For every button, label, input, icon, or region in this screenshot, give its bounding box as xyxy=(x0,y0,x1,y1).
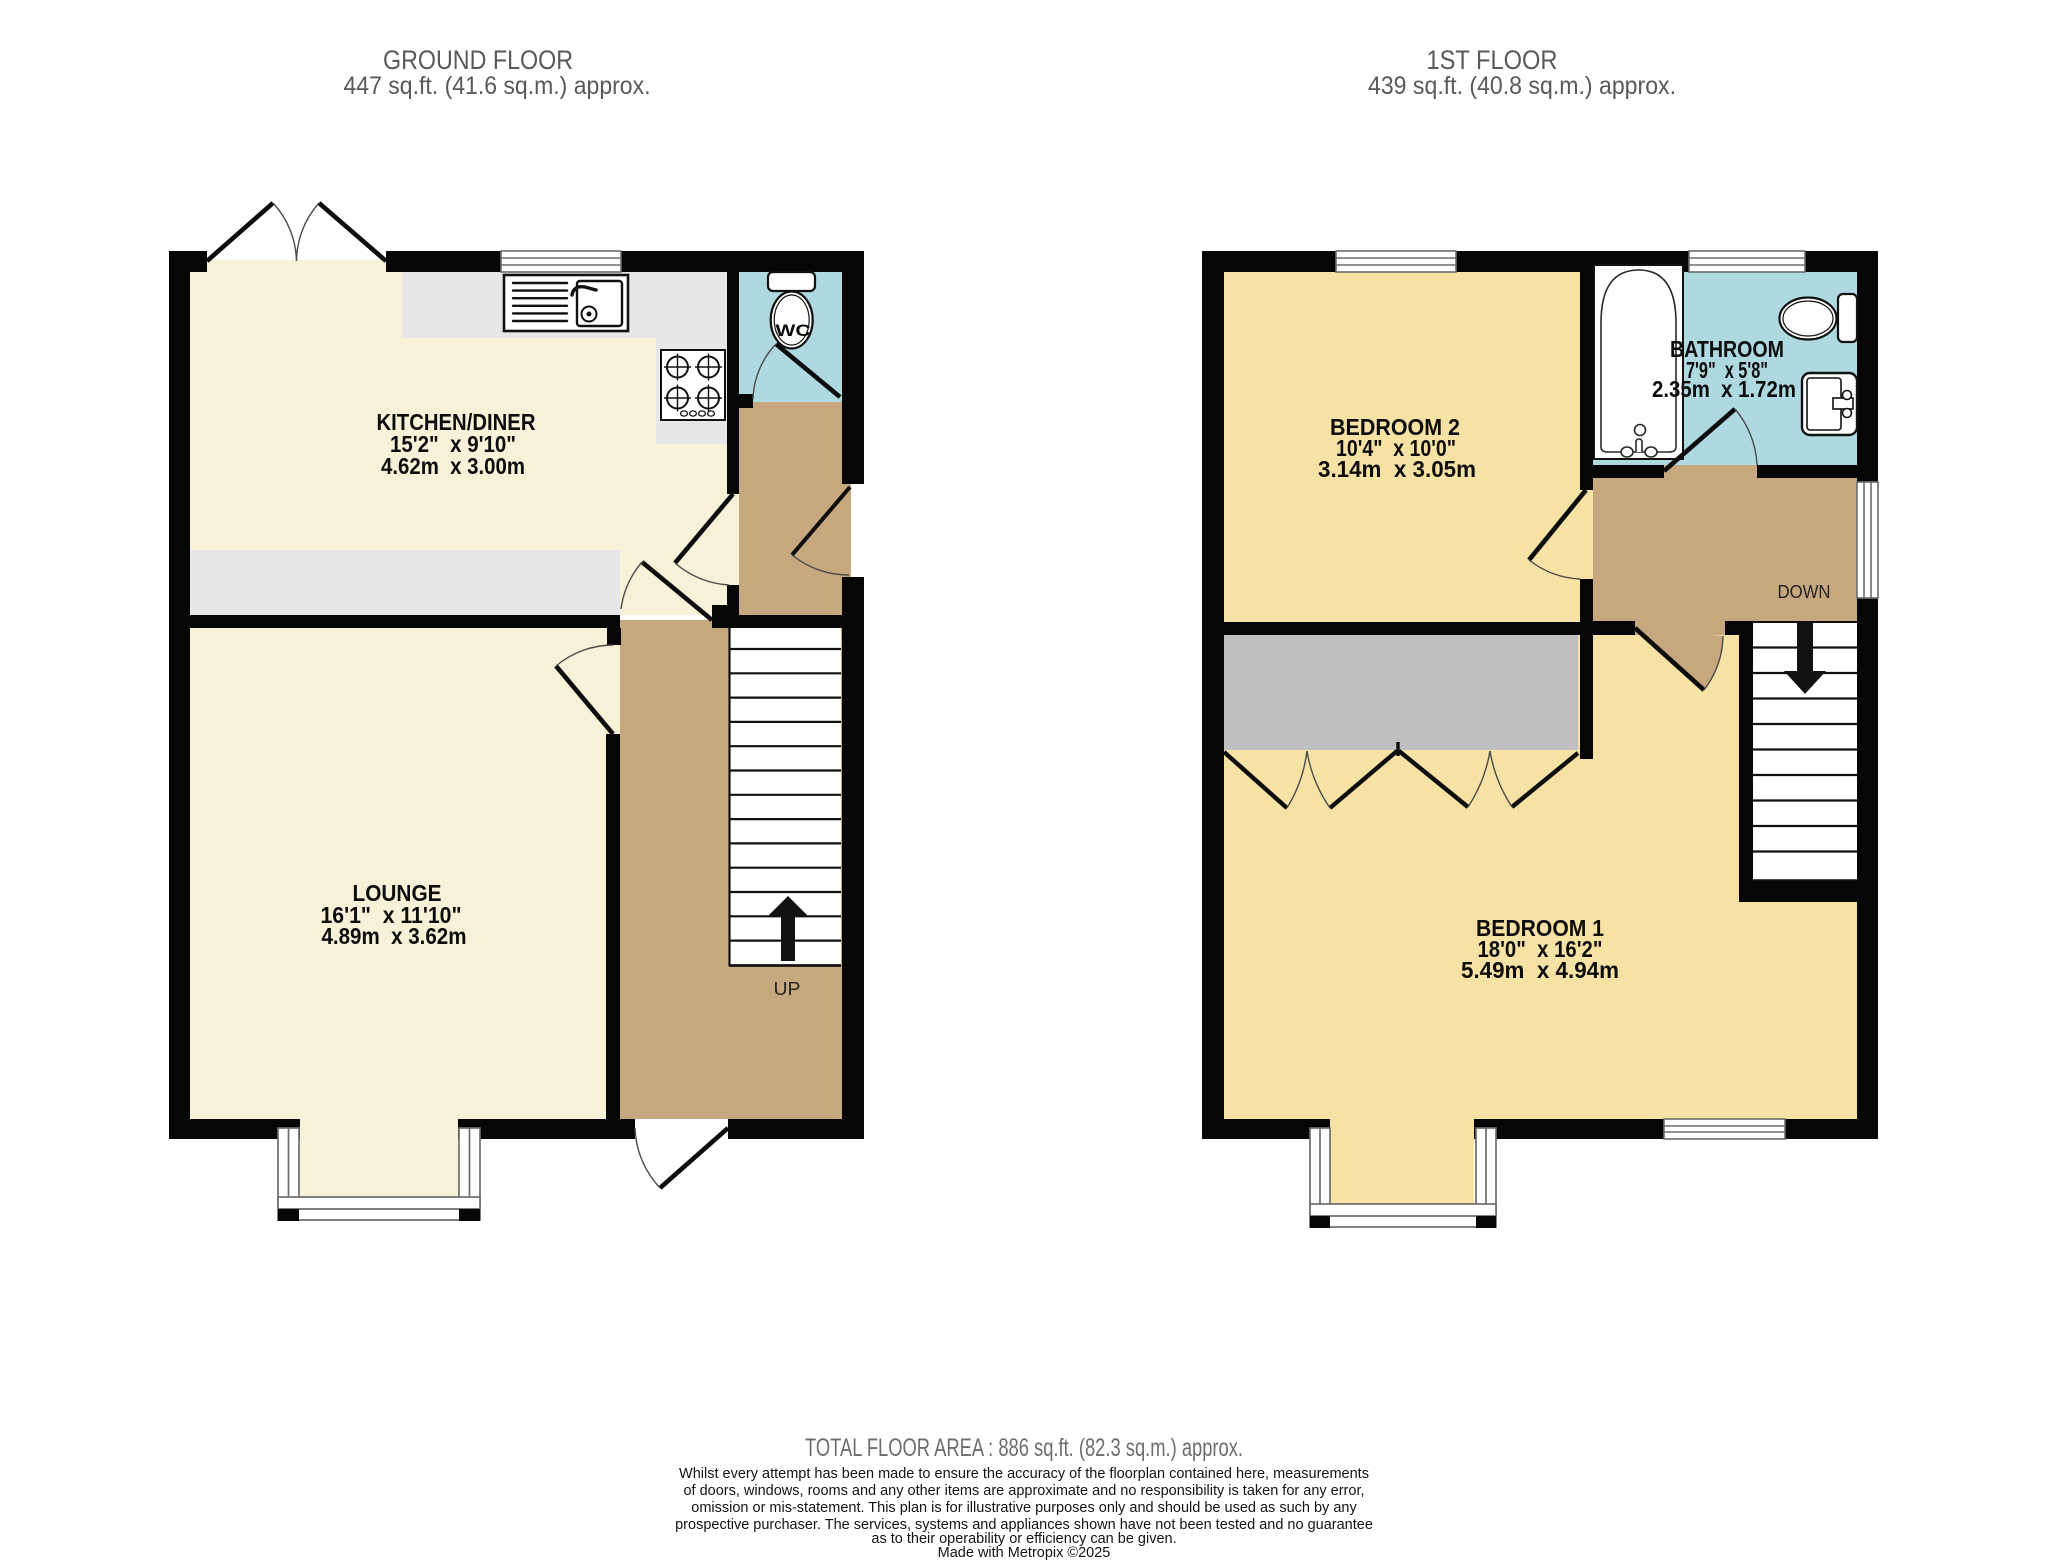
svg-text:of doors, windows, rooms and a: of doors, windows, rooms and any other i… xyxy=(683,1483,1364,1499)
svg-text:GROUND FLOOR: GROUND FLOOR xyxy=(383,45,573,75)
svg-text:5.49m x 4.94m: 5.49m x 4.94m xyxy=(1461,957,1619,983)
svg-text:439 sq.ft. (40.8 sq.m.) approx: 439 sq.ft. (40.8 sq.m.) approx. xyxy=(1368,72,1676,100)
svg-text:3.14m x 3.05m: 3.14m x 3.05m xyxy=(1318,456,1476,482)
svg-text:Made with Metropix ©2025: Made with Metropix ©2025 xyxy=(938,1545,1111,1561)
svg-text:4.89m x 3.62m: 4.89m x 3.62m xyxy=(322,923,467,949)
svg-text:WC: WC xyxy=(776,321,811,340)
svg-text:4.62m x 3.00m: 4.62m x 3.00m xyxy=(381,453,525,479)
svg-text:1ST FLOOR: 1ST FLOOR xyxy=(1427,45,1558,75)
svg-text:DOWN: DOWN xyxy=(1778,582,1831,602)
svg-text:omission or mis-statement. Thi: omission or mis-statement. This plan is … xyxy=(691,1500,1357,1516)
svg-text:2.35m x 1.72m: 2.35m x 1.72m xyxy=(1652,376,1796,402)
svg-text:Whilst every attempt has been: Whilst every attempt has been made to en… xyxy=(679,1466,1369,1482)
svg-text:447 sq.ft. (41.6 sq.m.) approx: 447 sq.ft. (41.6 sq.m.) approx. xyxy=(344,72,651,100)
svg-text:UP: UP xyxy=(774,979,801,999)
svg-text:TOTAL FLOOR AREA : 886 sq.ft.: TOTAL FLOOR AREA : 886 sq.ft. (82.3 sq.m… xyxy=(805,1434,1243,1462)
